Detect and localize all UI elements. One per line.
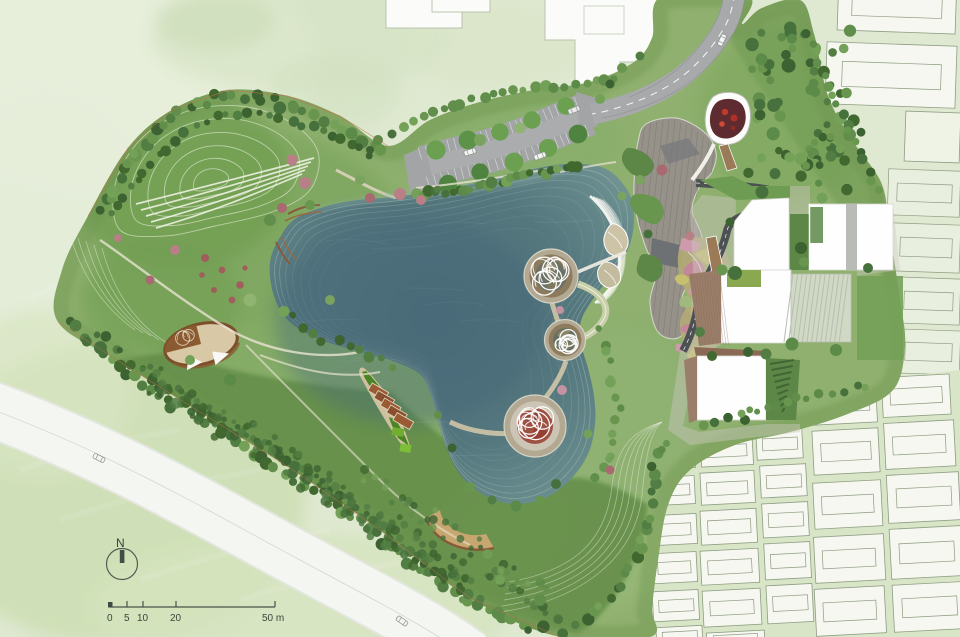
svg-text:50 m: 50 m [262, 613, 284, 624]
svg-text:10: 10 [137, 613, 149, 624]
svg-text:20: 20 [170, 613, 182, 624]
svg-text:N: N [116, 536, 125, 550]
svg-text:5: 5 [124, 613, 130, 624]
svg-text:0: 0 [107, 613, 113, 624]
